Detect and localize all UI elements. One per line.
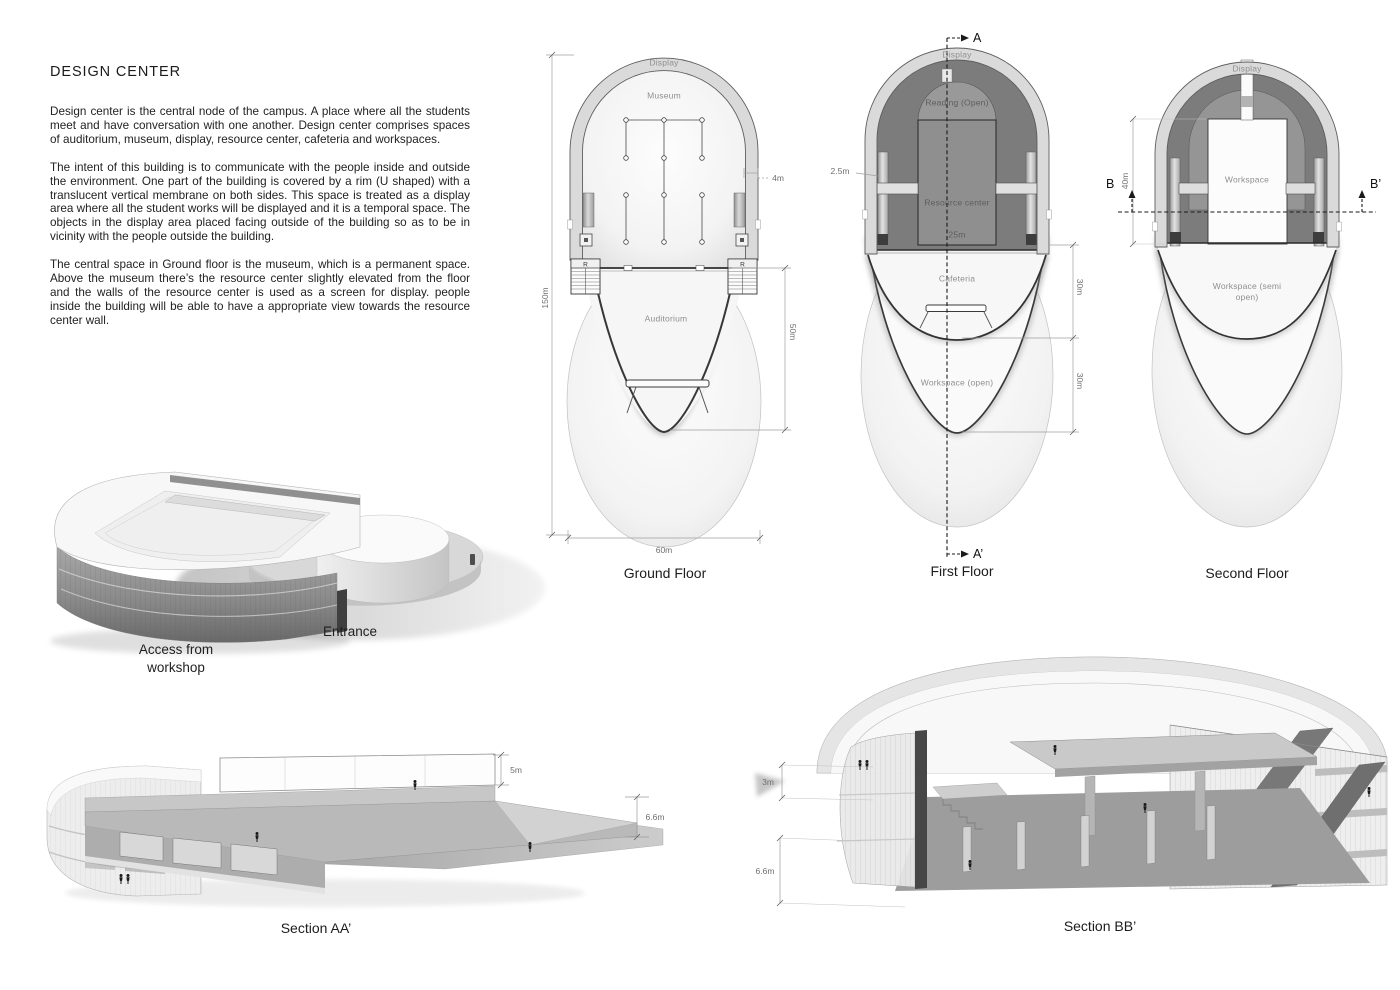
dim-25m: 25m: [948, 229, 965, 240]
section-aa-drawing: [25, 728, 670, 940]
axonometric-drawing: [25, 455, 545, 685]
dim-40m: 40m: [1120, 173, 1130, 190]
workspace-semi-label: Workspace (semi open): [1208, 281, 1286, 303]
first-floor-caption: First Floor: [931, 563, 994, 579]
dim-30m-upper: 30m: [1075, 279, 1085, 296]
dim-6-6m: 6.6m: [756, 866, 775, 876]
stair-label: R: [740, 262, 745, 269]
section-marker-b: B: [1106, 177, 1114, 191]
ground-floor-drawing: R R: [540, 30, 805, 590]
section-bb-caption: Section BB’: [1064, 918, 1136, 934]
workspace-label: Workspace: [1225, 174, 1269, 185]
description-panel: DESIGN CENTER Design center is the centr…: [50, 64, 470, 342]
auditorium-label: Auditorium: [645, 313, 688, 324]
dim-150m: 150m: [540, 287, 550, 308]
access-from-workshop-label: Access from workshop: [117, 641, 235, 677]
description-paragraph: Design center is the central node of the…: [50, 105, 470, 147]
entrance-label: Entrance: [323, 623, 377, 641]
dim-2-5m: 2.5m: [831, 166, 850, 176]
second-floor-plan: Display Workspace Workspace (semi open) …: [1100, 40, 1400, 580]
workspace-open-label: Workspace (open): [918, 377, 996, 388]
section-aa-caption: Section AA’: [281, 920, 352, 936]
dim-30m-lower: 30m: [1075, 373, 1085, 390]
display-area-label: Display: [1232, 63, 1261, 74]
cut-wall: [915, 730, 927, 889]
page-title: DESIGN CENTER: [50, 64, 470, 80]
stair-block-right: R: [728, 259, 757, 294]
dim-4m: 4m: [772, 173, 784, 183]
dim-50m: 50m: [788, 324, 798, 341]
cafeteria-label: Cafeteria: [939, 273, 975, 284]
section-aa-view: 5m 6.6m Section AA’: [25, 728, 670, 940]
axonometric-view: Entrance Access from workshop: [25, 455, 545, 685]
second-floor-drawing: [1100, 40, 1400, 580]
stair-block-left: R: [571, 259, 600, 294]
presentation-board: DESIGN CENTER Design center is the centr…: [0, 0, 1400, 990]
section-arrow-icon: [961, 35, 969, 42]
dim-60m: 60m: [656, 545, 673, 555]
section-arrow-icon: [961, 551, 969, 558]
resource-center-area: [918, 120, 996, 245]
left-facade: [837, 730, 927, 889]
dim-5m: 5m: [510, 765, 522, 775]
section-marker-a-prime: A’: [973, 547, 983, 561]
section-bb-view: 3m 6.6m Section BB’: [755, 645, 1400, 937]
resource-center-label: Resource center: [918, 197, 996, 208]
description-paragraph: The intent of this building is to commun…: [50, 161, 470, 244]
section-arrow-icon: [1359, 190, 1366, 198]
museum-label: Museum: [647, 90, 681, 101]
first-floor-drawing: [820, 25, 1110, 585]
ground-floor-caption: Ground Floor: [624, 565, 706, 581]
building-roof: [55, 472, 360, 570]
reading-label: Reading (Open): [918, 97, 996, 108]
glass-parapet: [220, 754, 495, 792]
section-bb-drawing: [755, 645, 1400, 937]
second-floor-caption: Second Floor: [1205, 565, 1288, 581]
dim-6-6m: 6.6m: [646, 812, 665, 822]
display-area-label: Display: [649, 57, 678, 68]
stair-label: R: [583, 262, 588, 269]
section-arrow-icon: [1129, 190, 1136, 198]
dim-3m: 3m: [762, 777, 774, 787]
first-floor-plan: Display Reading (Open) Resource center 2…: [820, 25, 1110, 585]
description-paragraph: The central space in Ground floor is the…: [50, 258, 470, 328]
section-marker-a: A: [973, 31, 981, 45]
ground-floor-plan: R R: [540, 30, 805, 590]
display-area-label: Display: [942, 49, 971, 60]
section-marker-b-prime: B’: [1370, 177, 1381, 191]
